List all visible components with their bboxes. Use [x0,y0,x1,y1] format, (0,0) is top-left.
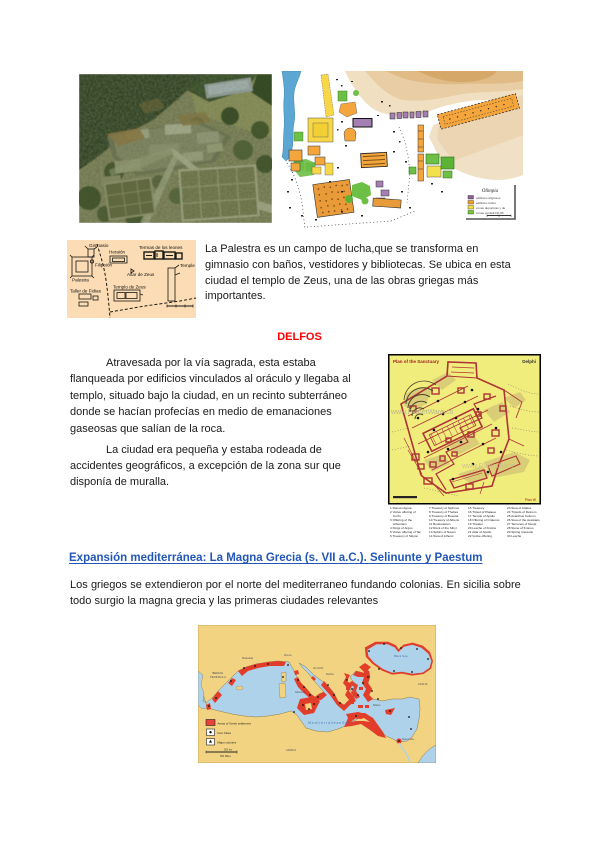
svg-text:www.PlanetWare: www.PlanetWare [461,463,515,470]
svg-text:500 km: 500 km [224,749,232,752]
svg-text:Major colonies: Major colonies [218,741,237,745]
svg-text:edificios civiles: edificios civiles [476,201,496,205]
svg-text:500 Miles: 500 Miles [220,755,231,758]
svg-text:Gimnasio: Gimnasio [89,243,109,248]
svg-text:ASIA M.: ASIA M. [418,682,428,686]
svg-text:Delfos: Delfos [326,672,335,676]
svg-text:PENINSULA: PENINSULA [210,675,226,679]
svg-text:Olimpia: Olimpia [482,189,499,194]
svg-text:ILLYRIA: ILLYRIA [313,666,323,670]
svg-text:Altar de Zeus: Altar de Zeus [127,272,155,277]
svg-text:Termas de los leones: Termas de los leones [139,245,183,250]
svg-text:Roma: Roma [284,653,292,657]
svg-text:Five Cities: Five Cities [218,731,232,735]
svg-text:Massalia: Massalia [242,656,253,660]
svg-text:Filipeión: Filipeión [95,263,113,268]
svg-text:Naucratis: Naucratis [402,737,414,741]
svg-text:Palestra: Palestra [72,278,89,283]
svg-text:22 Votive offering: 22 Votive offering [468,534,492,538]
svg-text:14 Stoa of Athens: 14 Stoa of Athens [429,534,454,538]
svg-text:Plan W: Plan W [525,498,537,502]
svg-text:Plan of the Sanctuary: Plan of the Sanctuary [393,359,440,364]
svg-text:Areas of Greek settlement: Areas of Greek settlement [218,722,252,726]
svg-text:zonas verdes: zonas verdes [476,211,494,215]
svg-text:Black Sea: Black Sea [394,654,408,658]
svg-text:Temple: Temple [180,263,195,268]
svg-text:M e d i t e r r a n e a n S: M e d i t e r r a n e a n S e a [308,721,350,725]
svg-text:Delphi: Delphi [522,359,536,364]
svg-text:6 Treasury of Sikyon: 6 Treasury of Sikyon [390,534,418,538]
svg-text:www.PlanetWare.co: www.PlanetWare.co [390,409,453,416]
svg-text:0 100 200: 0 100 200 [493,212,504,215]
svg-text:Templo de Zeus: Templo de Zeus [113,285,146,290]
svg-text:zonas deportivas y de: zonas deportivas y de [476,206,506,210]
svg-text:AFRICA: AFRICA [286,748,296,752]
svg-text:edificios religiosos: edificios religiosos [476,196,501,200]
svg-text:Siracusa: Siracusa [295,690,306,694]
svg-text:Heraión: Heraión [109,250,126,255]
svg-text:30 Lesche: 30 Lesche [507,534,522,538]
svg-text:Mileto: Mileto [373,703,381,707]
svg-text:Taller de Fidias: Taller de Fidias [70,289,102,294]
